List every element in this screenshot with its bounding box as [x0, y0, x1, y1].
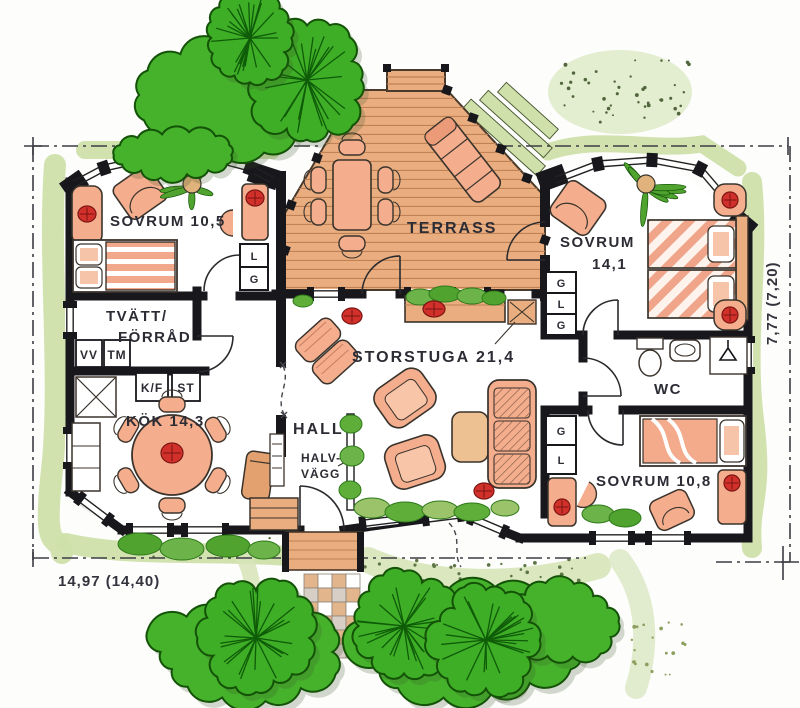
closet-letter: L: [558, 299, 565, 311]
label-terrass: TERRASS: [407, 220, 497, 237]
dimension-height: 7,77 (7,20): [764, 261, 781, 345]
closet-letter: G: [557, 426, 566, 438]
red-flower: [342, 308, 362, 324]
kf-label: K/F: [141, 381, 163, 395]
label-halvvagg-1: HALV-: [301, 451, 341, 465]
window-symbol: [589, 531, 635, 545]
red-flower: [78, 206, 96, 222]
window-symbol: [181, 523, 229, 537]
red-flower: [161, 443, 183, 463]
label-sovrum2: SOVRUM: [560, 234, 635, 251]
vv-label: VV: [80, 348, 98, 362]
window-symbol: [645, 531, 691, 545]
red-flower: [722, 307, 738, 323]
closet-letter: G: [557, 278, 566, 290]
dimension-width: 14,97 (14,40): [58, 573, 160, 590]
red-flower: [722, 192, 738, 208]
label-sovrum1: SOVRUM 10,5: [110, 213, 226, 230]
red-flower: [724, 475, 740, 491]
toilet-tank: [637, 338, 663, 349]
toilet: [639, 350, 661, 376]
shoe-rack: [270, 434, 284, 486]
terrace-steps: [387, 70, 445, 91]
blanket: [106, 242, 175, 290]
tm-label: TM: [107, 348, 126, 362]
red-flower: [474, 483, 494, 499]
red-flower: [554, 499, 570, 515]
label-wc: WC: [654, 381, 682, 398]
label-halvvagg-2: VÄGG: [301, 466, 340, 481]
red-flower: [246, 190, 264, 206]
folding-stool: [508, 300, 536, 324]
label-sovrum2-area: 14,1: [592, 256, 627, 273]
floor-plan-drawing: 14,97 (14,40) 7,77 (7,20): [0, 0, 800, 708]
label-tvatt-1: TVÄTT/: [106, 308, 168, 325]
closet-letter: G: [557, 320, 566, 332]
sofa: [488, 380, 536, 488]
closet-letter: L: [558, 455, 565, 467]
closet-letter: L: [251, 251, 258, 263]
red-flower: [423, 301, 445, 317]
label-storstuga: STORSTUGA 21,4: [352, 349, 515, 366]
window-symbol: [63, 301, 77, 339]
floor-plan-image: 14,97 (14,40) 7,77 (7,20): [0, 0, 800, 708]
label-tvatt-2: FÖRRÅD: [118, 329, 191, 346]
coffee-table: [452, 412, 488, 462]
label-hall: HALL: [293, 421, 344, 438]
closet-letter: G: [250, 274, 259, 286]
steps: [250, 498, 298, 530]
counter: [72, 423, 100, 491]
label-kok: KÖK 14,3: [126, 413, 205, 430]
label-sovrum3: SOVRUM 10,8: [596, 473, 712, 490]
